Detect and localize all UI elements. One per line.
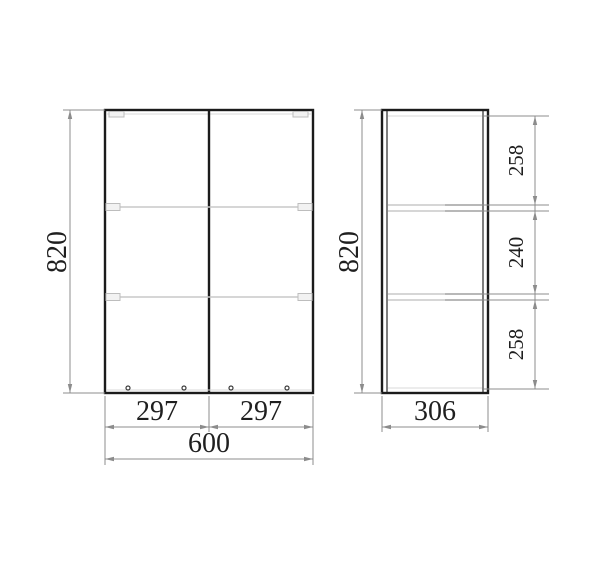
depth-label: 306 <box>414 396 456 427</box>
arrowhead-down <box>360 384 364 393</box>
shelf-pin <box>106 204 120 211</box>
arrowhead-up <box>533 211 537 220</box>
arrowhead-up <box>360 110 364 119</box>
total-width-label: 600 <box>188 428 230 459</box>
drawing-svg: 820 297 297 600 <box>0 0 600 579</box>
shelf-pin <box>106 294 120 301</box>
side-height-dimension: 820 <box>334 110 382 393</box>
arrowhead-left <box>105 457 114 461</box>
side-depth-dimension: 306 <box>382 396 488 432</box>
arrowhead-right <box>304 425 313 429</box>
arrowhead-up <box>533 300 537 309</box>
arrowhead-down <box>533 380 537 389</box>
side-cabinet-outline <box>382 110 488 393</box>
door-width-left-label: 297 <box>136 396 178 427</box>
door-width-right-label: 297 <box>240 396 282 427</box>
arrowhead-left <box>382 425 391 429</box>
arrowhead-down <box>68 384 72 393</box>
section-middle-label: 240 <box>504 237 528 269</box>
drill-hole <box>126 386 130 390</box>
section-top-label: 258 <box>504 145 528 177</box>
shelf-pin <box>298 204 312 211</box>
shelf-pin <box>298 294 312 301</box>
section-bottom-label: 258 <box>504 329 528 361</box>
arrowhead-left <box>105 425 114 429</box>
drill-hole <box>285 386 289 390</box>
side-view <box>382 110 488 393</box>
shelf-section-dimensions: 258 240 258 <box>445 116 549 389</box>
arrowhead-up <box>533 116 537 125</box>
drill-hole <box>229 386 233 390</box>
hinge-plate <box>293 112 308 118</box>
front-height-dimension: 820 <box>42 110 105 393</box>
hinge-plate <box>109 112 124 118</box>
arrowhead-down <box>533 285 537 294</box>
arrowhead-right <box>479 425 488 429</box>
arrowhead-up <box>68 110 72 119</box>
side-height-label: 820 <box>334 231 365 273</box>
arrowhead-down <box>533 196 537 205</box>
front-total-width-dimension: 600 <box>105 428 313 461</box>
arrowhead-right <box>304 457 313 461</box>
front-view <box>105 110 313 393</box>
dimension-drawing: 820 297 297 600 <box>0 0 600 579</box>
front-height-label: 820 <box>42 231 73 273</box>
drill-hole <box>182 386 186 390</box>
